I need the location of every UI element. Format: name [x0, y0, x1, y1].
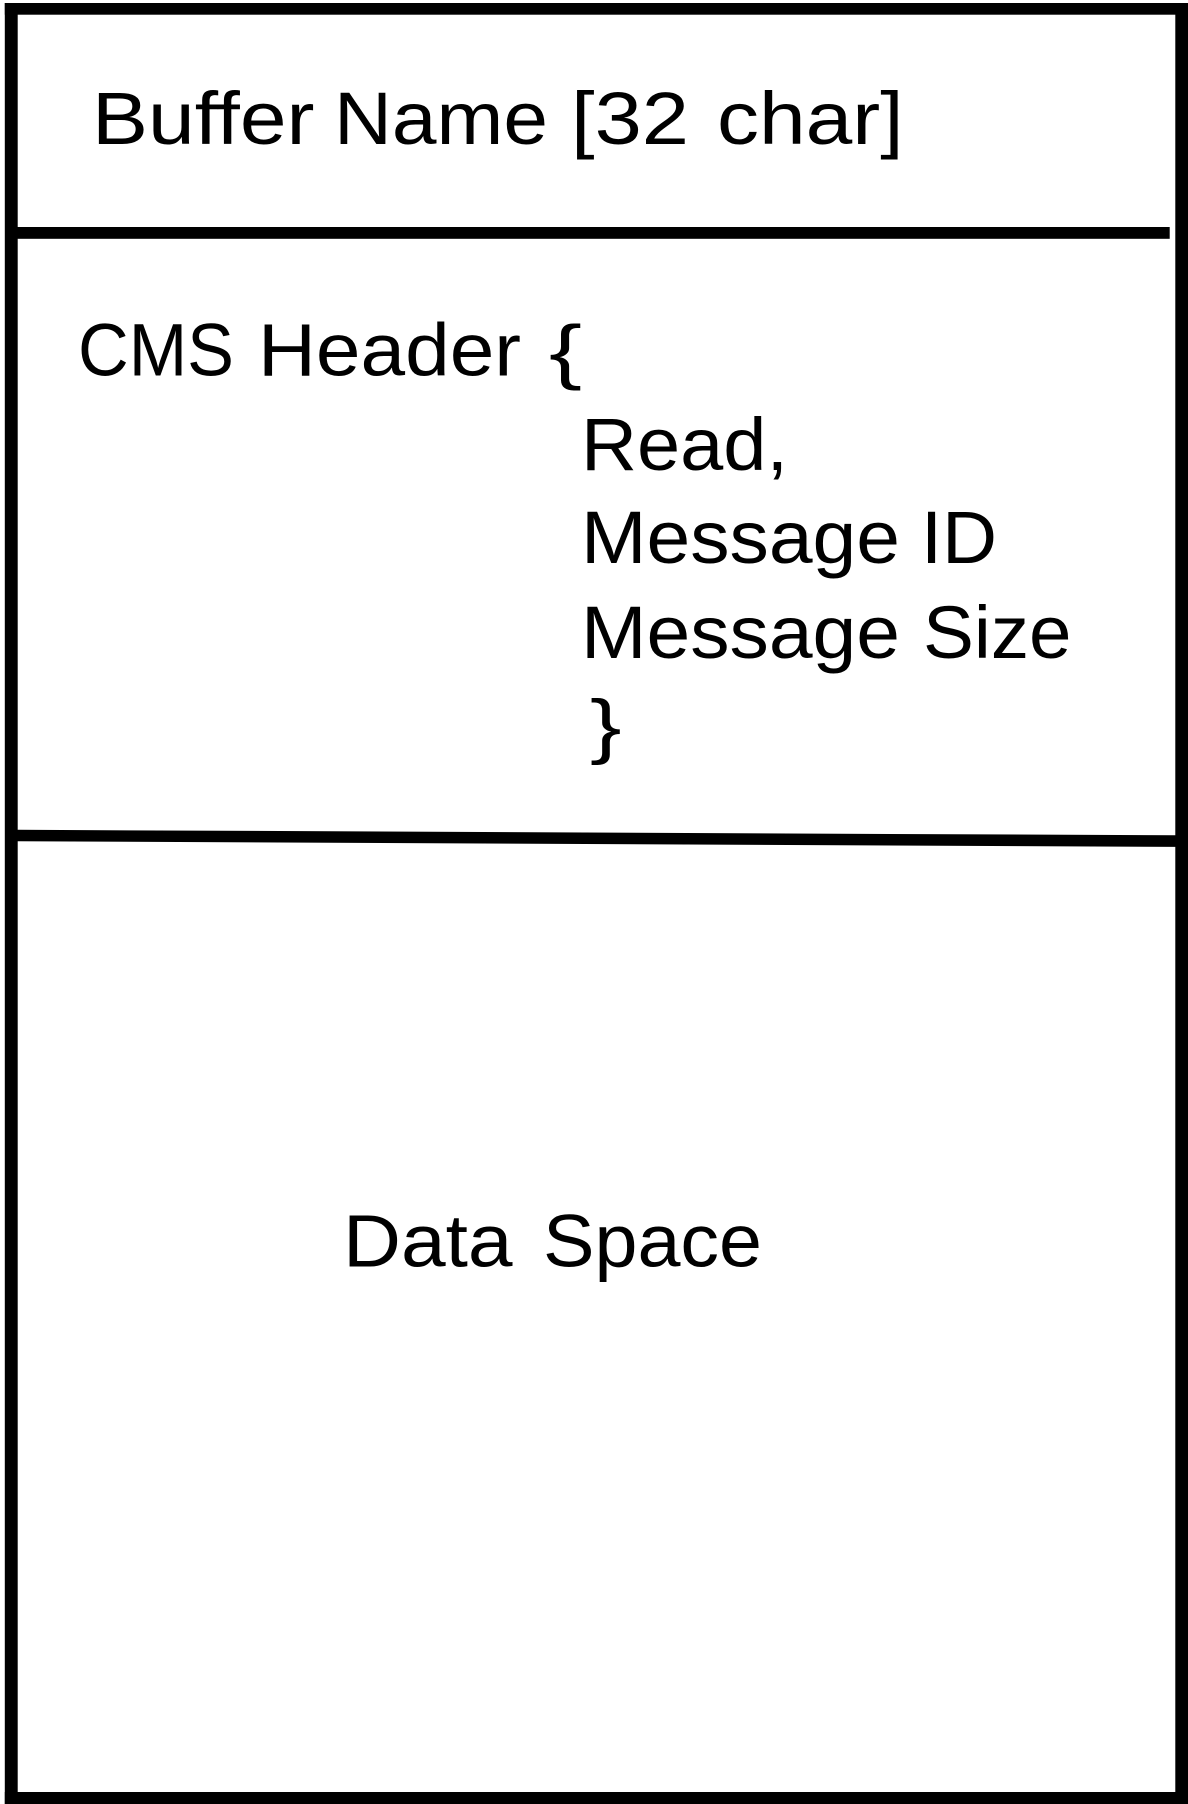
- svg-text:[32: [32: [571, 77, 689, 160]
- svg-text:Message: Message: [581, 591, 900, 674]
- svg-text:char]: char]: [717, 77, 904, 160]
- svg-text:Message: Message: [581, 496, 900, 579]
- svg-text:Size: Size: [923, 591, 1072, 674]
- svg-text:{: {: [549, 312, 582, 391]
- svg-text:Name: Name: [334, 77, 548, 160]
- svg-text:CMS: CMS: [78, 308, 234, 391]
- svg-text:Read,: Read,: [581, 403, 788, 486]
- svg-text:Space: Space: [543, 1200, 762, 1283]
- svg-text:}: }: [590, 687, 622, 766]
- svg-text:Header: Header: [258, 308, 521, 391]
- svg-text:Data: Data: [343, 1200, 513, 1283]
- svg-text:ID: ID: [921, 496, 997, 579]
- svg-text:Buffer: Buffer: [92, 77, 315, 160]
